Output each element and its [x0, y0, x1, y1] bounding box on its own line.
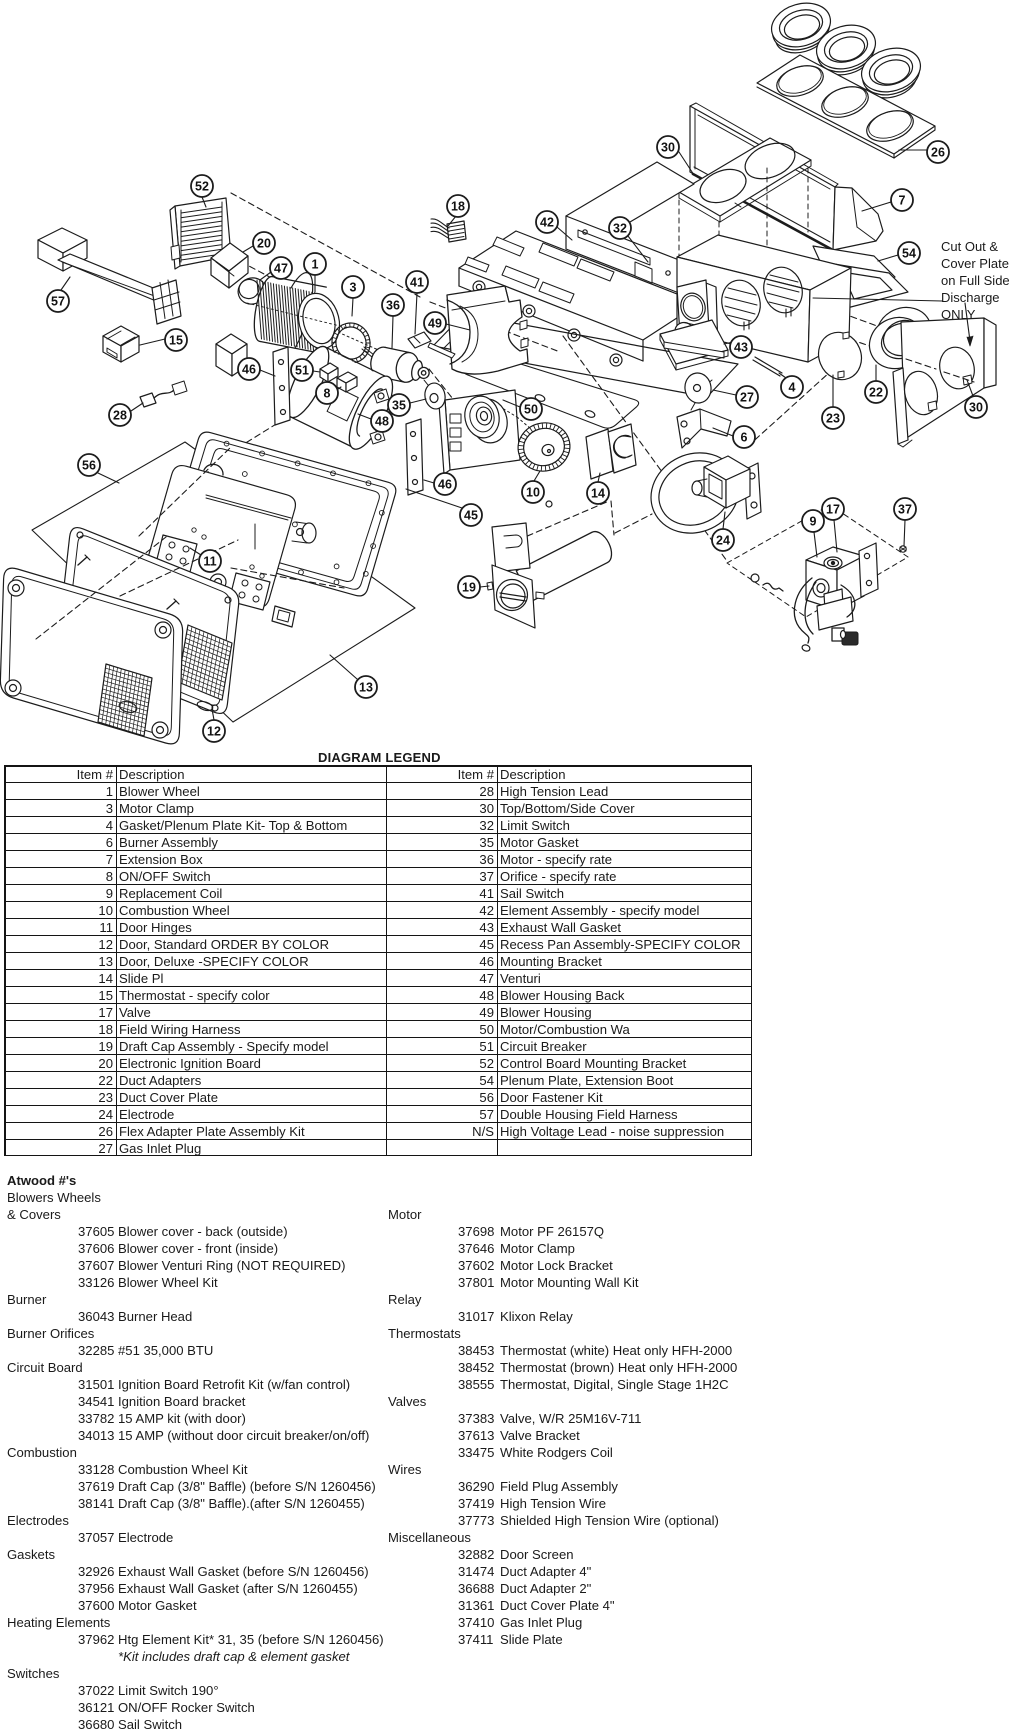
svg-text:26: 26 — [931, 146, 945, 160]
svg-text:15: 15 — [169, 334, 183, 348]
svg-text:46: 46 — [438, 478, 452, 492]
svg-text:1: 1 — [312, 258, 319, 272]
svg-text:11: 11 — [203, 555, 216, 569]
svg-text:24: 24 — [716, 534, 730, 548]
svg-text:49: 49 — [428, 317, 442, 331]
svg-text:12: 12 — [207, 725, 221, 739]
svg-text:36: 36 — [386, 299, 400, 313]
svg-text:52: 52 — [195, 180, 209, 194]
svg-text:8: 8 — [324, 387, 331, 401]
svg-text:37: 37 — [898, 503, 912, 517]
svg-text:43: 43 — [734, 341, 748, 355]
svg-text:48: 48 — [375, 415, 389, 429]
svg-text:18: 18 — [451, 200, 465, 214]
svg-text:3: 3 — [350, 281, 357, 295]
svg-text:30: 30 — [969, 401, 983, 415]
svg-text:19: 19 — [462, 581, 476, 595]
svg-text:45: 45 — [464, 509, 478, 523]
svg-text:23: 23 — [826, 412, 840, 426]
svg-text:50: 50 — [524, 403, 538, 417]
svg-text:51: 51 — [295, 364, 309, 378]
svg-text:56: 56 — [82, 459, 96, 473]
svg-text:13: 13 — [359, 681, 373, 695]
svg-text:46: 46 — [242, 363, 256, 377]
svg-text:30: 30 — [661, 141, 675, 155]
svg-text:14: 14 — [591, 487, 605, 501]
svg-text:17: 17 — [826, 503, 840, 517]
svg-text:4: 4 — [789, 381, 796, 395]
svg-text:35: 35 — [392, 399, 406, 413]
svg-text:20: 20 — [257, 237, 271, 251]
svg-text:41: 41 — [410, 276, 424, 290]
svg-text:32: 32 — [613, 222, 627, 236]
svg-text:27: 27 — [740, 391, 754, 405]
svg-text:7: 7 — [899, 194, 906, 208]
svg-text:9: 9 — [810, 515, 817, 529]
svg-text:6: 6 — [741, 431, 748, 445]
svg-text:54: 54 — [902, 247, 916, 261]
svg-text:47: 47 — [274, 262, 288, 276]
svg-text:28: 28 — [113, 409, 127, 423]
svg-text:10: 10 — [526, 486, 540, 500]
svg-text:42: 42 — [540, 216, 554, 230]
svg-text:22: 22 — [869, 386, 883, 400]
svg-text:57: 57 — [51, 295, 65, 309]
